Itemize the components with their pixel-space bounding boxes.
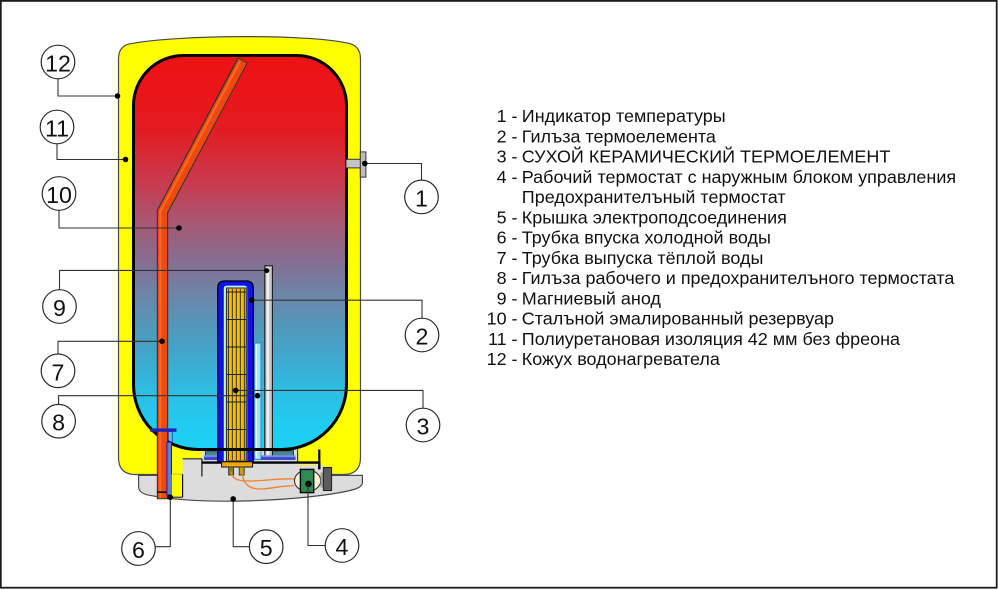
svg-text:Гилъза рабочего и предохраните: Гилъза рабочего и предохранителъного тер… [522,268,955,288]
svg-text:5 -: 5 - [497,207,518,227]
svg-text:Индикатор температуры: Индикатор температуры [522,106,726,126]
svg-text:2: 2 [416,324,429,350]
svg-text:Трубка впуска холодной воды: Трубка впуска холодной воды [522,228,771,248]
svg-text:8: 8 [52,410,65,436]
svg-text:6 -: 6 - [497,228,518,248]
svg-text:12: 12 [45,51,71,77]
svg-text:6: 6 [132,537,145,563]
svg-text:7: 7 [52,359,65,385]
svg-text:2 -: 2 - [497,126,518,146]
svg-text:Магниевый анод: Магниевый анод [522,288,662,308]
svg-text:1: 1 [415,185,428,211]
svg-text:11 -: 11 - [488,329,518,349]
svg-text:8 -: 8 - [497,268,518,288]
svg-text:3 -: 3 - [497,147,518,167]
svg-text:9: 9 [53,295,66,321]
svg-text:СУХОЙ КЕРАМИЧЕСКИЙ ТЕРМОЕЛЕМЕН: СУХОЙ КЕРАМИЧЕСКИЙ ТЕРМОЕЛЕМЕНТ [522,146,891,167]
svg-text:Гилъза термоелемента: Гилъза термоелемента [522,126,716,146]
svg-text:1 -: 1 - [497,106,518,126]
svg-text:5: 5 [260,535,273,561]
svg-text:11: 11 [45,116,69,142]
svg-text:Сталъной эмалированный резерву: Сталъной эмалированный резервуар [522,309,834,329]
svg-text:10 -: 10 - [487,309,518,329]
svg-text:3: 3 [417,414,430,440]
svg-text:Полиуретановая изоляция 42 мм: Полиуретановая изоляция 42 мм без фреона [522,329,900,349]
svg-text:Рабочий термостат с наружным б: Рабочий термостат с наружным блоком упра… [522,167,956,187]
svg-text:7 -: 7 - [497,248,518,268]
svg-text:Крышка электроподсоединения: Крышка электроподсоединения [522,207,787,227]
svg-text:4 -: 4 - [497,167,518,187]
svg-text:12 -: 12 - [487,349,518,369]
svg-text:10: 10 [46,182,72,208]
svg-text:4: 4 [336,534,349,560]
svg-text:Кожух водонагревателa: Кожух водонагревателa [522,349,720,369]
svg-text:Трубка выпуска тёплой воды: Трубка выпуска тёплой воды [522,248,764,268]
svg-text:Предохранителъный термостат: Предохранителъный термостат [522,187,786,207]
svg-text:9 -: 9 - [497,288,518,308]
